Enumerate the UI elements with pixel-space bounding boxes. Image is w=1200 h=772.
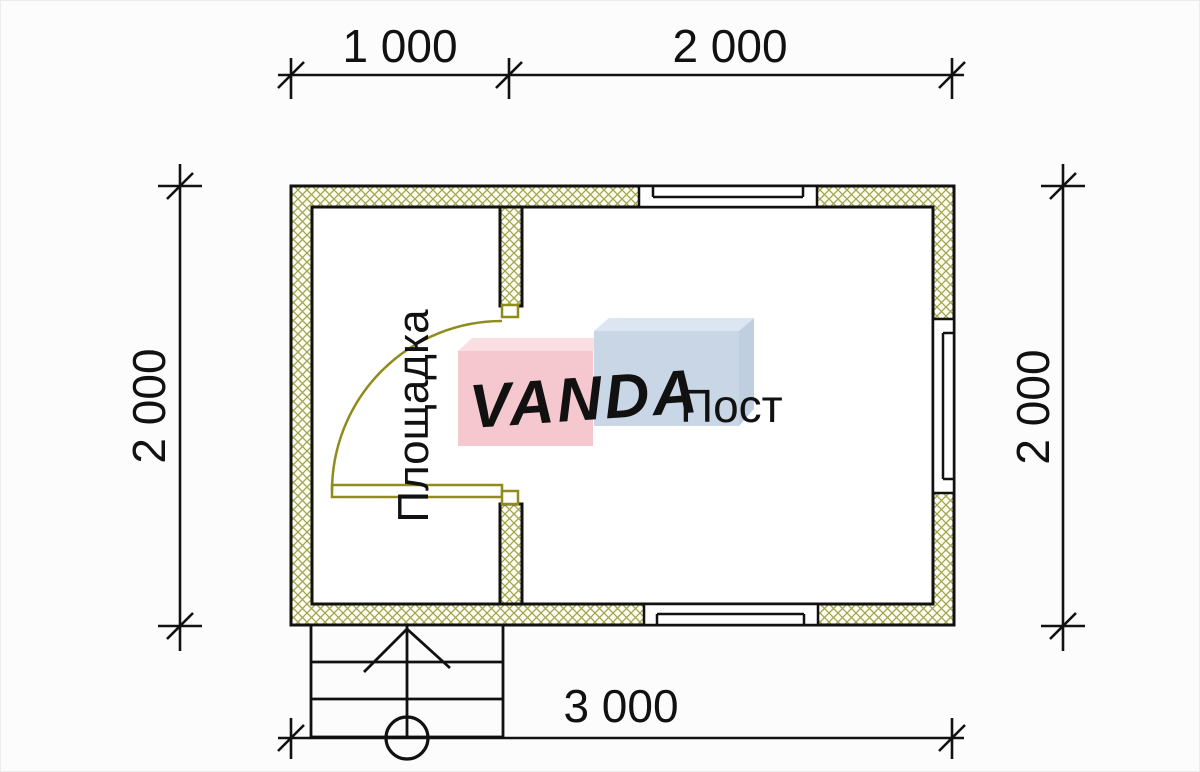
dim-label-right-2000: 2 000	[1007, 349, 1059, 464]
plan-canvas: VANDA 1 000 2 000	[1, 1, 1200, 772]
door-jamb-bottom	[502, 491, 518, 504]
window-right	[933, 319, 954, 493]
window-top	[639, 186, 817, 207]
door-jamb-top	[502, 305, 518, 317]
dim-label-top-2000: 2 000	[672, 20, 787, 72]
dim-label-left-2000: 2 000	[123, 348, 175, 463]
floor-plan-drawing: VANDA 1 000 2 000	[0, 0, 1200, 772]
dim-label-bottom-3000: 3 000	[563, 680, 678, 732]
watermark-pink-top-face	[458, 338, 607, 351]
partition-bottom-stub	[500, 504, 522, 604]
watermark-blue-top-face	[594, 318, 754, 331]
dim-label-top-1000: 1 000	[342, 20, 457, 72]
partition-top-stub	[500, 207, 522, 306]
room-label-post: Пост	[680, 380, 783, 432]
window-bottom	[644, 604, 818, 625]
room-label-platform: Площадка	[389, 309, 438, 523]
